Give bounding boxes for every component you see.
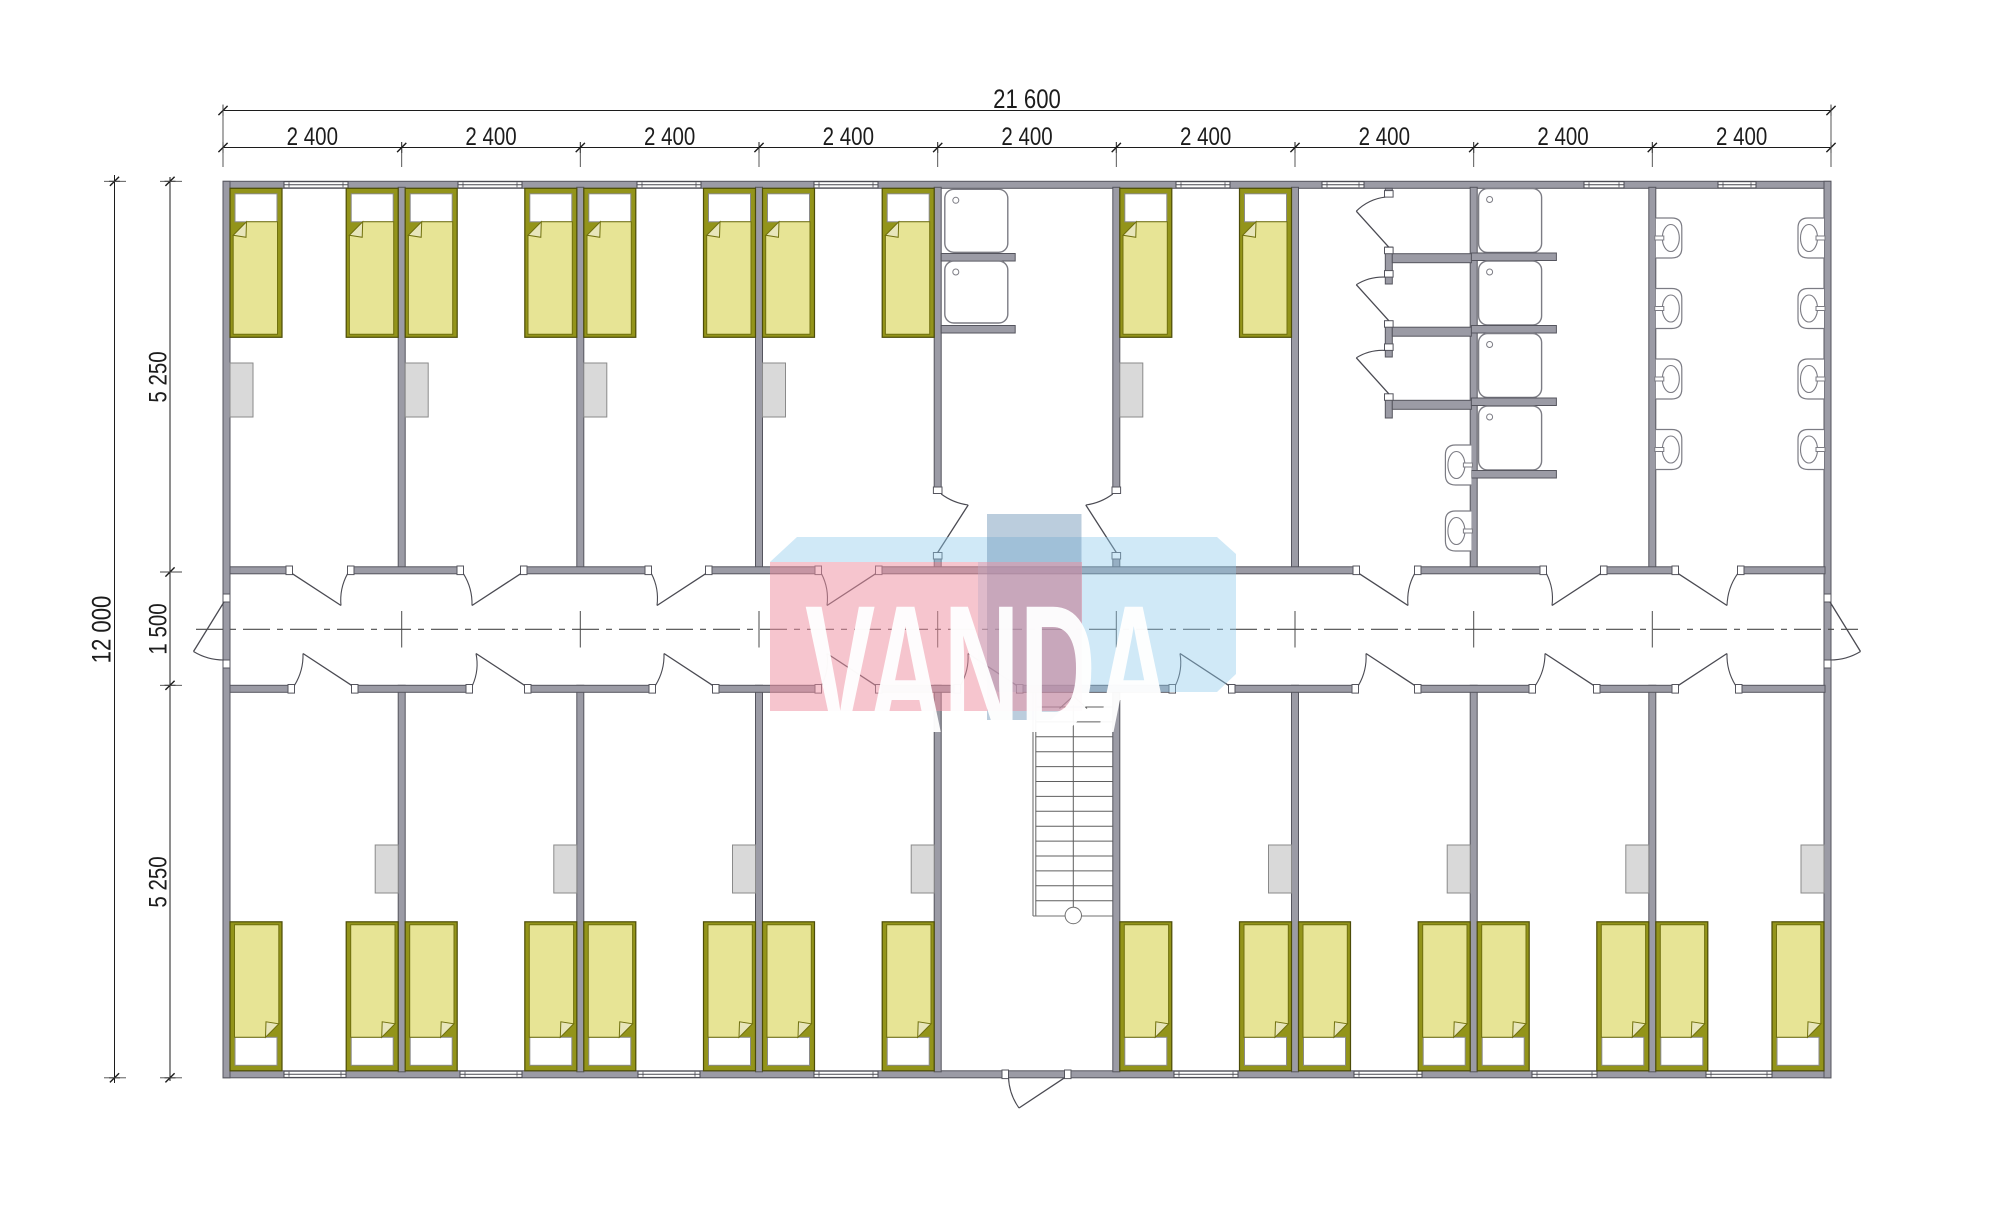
svg-text:VANDA: VANDA [805, 567, 1172, 771]
svg-text:1 500: 1 500 [144, 603, 172, 654]
svg-text:21 600: 21 600 [993, 85, 1061, 115]
svg-text:2 400: 2 400 [1001, 122, 1052, 150]
svg-text:2 400: 2 400 [644, 122, 695, 150]
svg-text:12 000: 12 000 [88, 596, 118, 664]
svg-text:2 400: 2 400 [823, 122, 874, 150]
svg-text:2 400: 2 400 [1359, 122, 1410, 150]
svg-text:2 400: 2 400 [1537, 122, 1588, 150]
svg-text:5 250: 5 250 [144, 856, 172, 907]
svg-text:2 400: 2 400 [1716, 122, 1767, 150]
svg-text:5 250: 5 250 [144, 351, 172, 402]
svg-text:2 400: 2 400 [465, 122, 516, 150]
svg-text:2 400: 2 400 [1180, 122, 1231, 150]
svg-text:2 400: 2 400 [287, 122, 338, 150]
